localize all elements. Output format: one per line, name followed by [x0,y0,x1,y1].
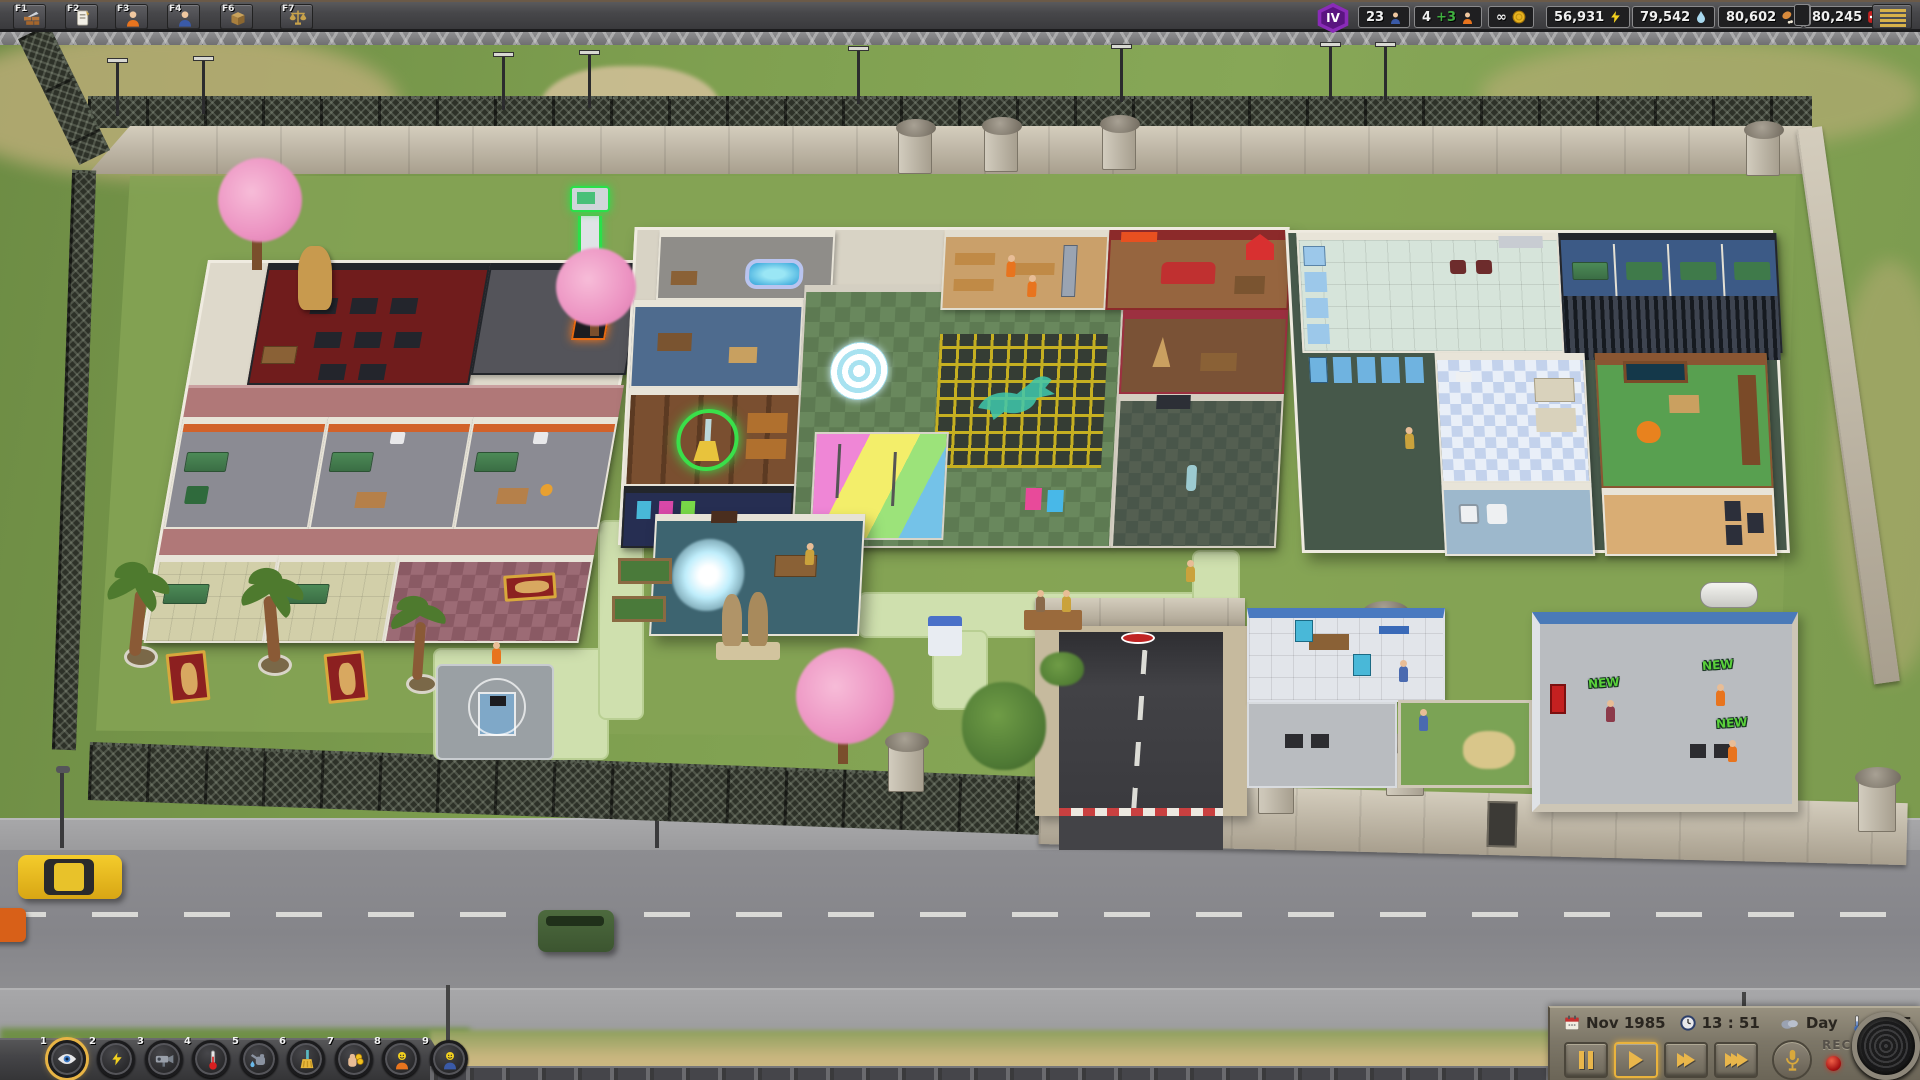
gate-sign [1121,632,1155,644]
barrier-stripe[interactable] [1059,808,1223,816]
tool-number: 6 [279,1036,286,1047]
guard[interactable] [1399,666,1408,682]
desk[interactable] [657,333,692,351]
build-menu-button[interactable]: F1 [13,4,46,30]
power-value: 56,931 [1554,10,1604,25]
art-studio[interactable] [1119,310,1288,394]
main-block[interactable] [618,227,1290,545]
map-edge-railing [0,32,1920,45]
corridor [183,385,624,417]
daypart-cloud-icon [1780,1016,1800,1030]
common-hall[interactable] [791,285,1125,548]
play-icon [1629,1051,1643,1069]
game-time: 13 : 51 [1702,1014,1760,1032]
camera-overlay-icon [155,1053,175,1067]
top-toolbar: F1 F2 F3 F4 [0,0,1920,32]
staff-member[interactable] [805,549,815,565]
microphone-icon [1785,1049,1800,1073]
hamburger-menu-icon [1880,9,1906,27]
power-counter[interactable]: 56,931 [1546,6,1630,28]
game-screen: NEW NEW NEW [0,0,1920,1080]
laundry-room[interactable] [1441,483,1595,556]
gold-statue[interactable] [298,246,332,310]
perimeter-wall-top [88,126,1812,174]
desk[interactable] [261,346,298,364]
rec-label: REC [1822,1038,1851,1052]
staff-icon [177,9,193,27]
scanner-machine[interactable] [1295,620,1313,642]
floodlight [1329,42,1332,100]
guard[interactable] [1419,715,1428,731]
rabbit-statue[interactable] [748,592,768,646]
water-overlay-button[interactable] [240,1040,278,1078]
floodlight [588,50,591,108]
fastest-forward-icon [1725,1053,1748,1067]
spotlight[interactable] [835,444,841,498]
counter[interactable] [1498,236,1543,248]
food-counter-value: 80,602 [1726,10,1776,25]
picnic-table[interactable] [1024,610,1082,630]
palm-tree [104,560,164,678]
driveway-ramp [1059,632,1223,816]
corridor [159,529,599,555]
reception-court[interactable] [1247,702,1397,788]
green-van[interactable] [538,910,614,952]
watchtower[interactable] [1858,778,1896,832]
money-coin-icon [1512,10,1526,24]
orange-car[interactable] [0,908,26,942]
floodlight [1384,42,1387,100]
shower-stalls[interactable] [1303,246,1326,266]
armchair[interactable] [711,511,738,523]
easel[interactable] [1152,337,1172,367]
water-counter[interactable]: 79,542 [1632,6,1715,28]
power-overlay-icon [110,1050,124,1068]
tool-number: 9 [422,1036,429,1047]
floodlight [116,58,119,116]
watchtower[interactable] [898,128,932,174]
prisoner-count-bonus: +3 [1436,10,1456,25]
cell-beds[interactable] [1572,262,1609,280]
cherry-tree-canopy [796,648,894,744]
fast-forward-icon [1677,1053,1695,1067]
water-overlay-icon [250,1052,270,1068]
watchtower[interactable] [1102,124,1136,170]
dinosaur-topiary[interactable] [969,368,1068,424]
medical-counter-value: 80,245 [1812,10,1862,25]
chairs[interactable] [1450,260,1467,274]
cherry-tree-canopy [556,248,636,326]
floodlight [1120,44,1123,102]
new-prisoner-badge: NEW [1716,715,1748,731]
money-value: ∞ [1496,10,1507,25]
courtyard[interactable] [1398,700,1532,788]
cell[interactable] [164,417,329,529]
prisoner-count-icon [1461,11,1474,24]
cherry-tree-canopy [218,158,302,242]
propane-tank[interactable] [1700,582,1758,608]
phone-booth[interactable] [1550,684,1566,714]
games-room[interactable] [1602,488,1778,556]
prisoner-count[interactable]: 4 +3 [1414,6,1482,28]
entry-door[interactable] [1156,395,1191,409]
cleanliness-overlay-button[interactable] [287,1040,325,1078]
justice-menu-button[interactable]: F7 [280,4,313,30]
shower-room[interactable] [1296,233,1564,353]
desk[interactable] [1200,353,1237,371]
tool-number: 3 [137,1036,144,1047]
reception-desk[interactable] [1309,634,1349,650]
table[interactable] [496,488,529,504]
announce-mic-button[interactable] [1772,1040,1812,1080]
contracts-icon [75,9,91,27]
tool-number: 2 [89,1036,96,1047]
bean-bag[interactable] [1636,421,1661,443]
cafeteria-tables[interactable] [955,253,996,265]
daypart-label: Day [1806,1014,1838,1032]
tiger-statue-mat[interactable] [503,572,557,602]
vending-machines[interactable] [1025,488,1042,510]
staff-menu-button[interactable]: F4 [167,4,200,30]
cell[interactable] [309,417,474,529]
floodlight [502,52,505,110]
prison-level-badge[interactable]: IV [1316,3,1350,33]
new-prisoner-badge: NEW [1588,675,1620,691]
calendar-icon [1564,1015,1580,1031]
money-counter[interactable]: ∞ [1488,6,1534,28]
taxi-vehicle[interactable] [18,855,122,899]
view-mode-button[interactable] [48,1040,86,1078]
scanner-machine[interactable] [1353,654,1371,676]
broom-shop[interactable] [624,388,804,486]
bottom-rail [430,1066,1550,1080]
staff-mood-button[interactable] [430,1040,468,1078]
staff-member[interactable] [1405,433,1415,449]
cell-block-b[interactable] [1285,230,1790,553]
cell-block-a[interactable] [141,260,643,640]
washing-machines[interactable] [1458,504,1479,524]
prisoner[interactable] [1716,690,1725,706]
chairs[interactable] [1690,744,1706,758]
cell[interactable] [454,417,619,529]
tool-number: 8 [374,1036,381,1047]
bush [1040,652,1084,686]
cafeteria[interactable] [940,230,1109,310]
prisoner[interactable] [1006,261,1016,277]
arcade-machines[interactable] [636,501,651,519]
prisoner[interactable] [492,648,501,664]
staff-count-value: 23 [1366,10,1384,25]
table[interactable] [354,492,387,508]
driveway-center-line [1131,642,1148,812]
prisoner[interactable] [1027,281,1037,297]
statue[interactable] [1186,465,1197,491]
supplies-box-icon [229,10,247,26]
red-couch[interactable] [1161,262,1216,284]
prisoner-count-value: 4 [1422,10,1431,25]
toilet-stalls[interactable] [1534,378,1575,402]
garden-plot[interactable] [618,558,672,584]
new-prisoner-badge: NEW [1702,657,1734,673]
water-value: 79,542 [1640,10,1690,25]
prisoner[interactable] [1728,746,1737,762]
cell-dividers [1613,244,1618,296]
holding-yard[interactable]: NEW NEW NEW [1532,612,1798,812]
produce-crates[interactable] [747,413,788,433]
bathroom[interactable] [1435,353,1592,483]
tool-number: 4 [184,1036,191,1047]
chairs[interactable] [1285,734,1303,748]
table[interactable] [1669,395,1700,413]
build-wall-icon [23,11,41,27]
teddy-bear[interactable] [539,484,553,496]
watchtower[interactable] [888,742,924,792]
power-bolt-icon [1609,10,1622,24]
tool-number: 5 [232,1036,239,1047]
sink[interactable] [533,432,549,444]
recreation-room[interactable] [1595,353,1774,488]
cleanliness-overlay-icon [299,1050,315,1070]
camera-overlay-button[interactable] [145,1040,183,1078]
road-center-line [0,912,1920,917]
wall-gate-door[interactable] [1487,801,1518,848]
clock-icon [1680,1015,1696,1031]
justice-scales-icon [289,9,307,27]
fastest-forward-button[interactable] [1714,1042,1758,1078]
sink[interactable] [1456,372,1473,382]
food-counter[interactable]: 80,602 [1718,6,1803,28]
medical-counter2 [1794,4,1810,26]
security-room[interactable] [247,263,491,385]
tool-number: 7 [327,1036,334,1047]
bush-tree [962,682,1046,770]
view-eye-icon [57,1052,77,1066]
supplies-menu-button[interactable]: F6 [220,4,253,30]
fast-forward-button[interactable] [1664,1042,1708,1078]
watchtower[interactable] [1746,130,1780,176]
hot-tub[interactable] [744,259,804,289]
basketball-hoop[interactable] [490,696,506,706]
barrier-rail [1379,626,1409,634]
main-menu-button[interactable] [1872,4,1912,30]
visitor[interactable] [1036,596,1045,612]
level-label: IV [1326,11,1340,25]
rec-indicator-lamp [1826,1056,1841,1071]
staff-member[interactable] [1186,566,1195,582]
perimeter-fence-top [88,96,1812,128]
prisoner-mood-button[interactable] [382,1040,420,1078]
serving-counter[interactable] [1061,245,1078,297]
temperature-overlay-button[interactable] [192,1040,230,1078]
tiger-statue-mat[interactable] [165,650,210,704]
shelves[interactable] [1738,375,1761,465]
pause-button[interactable] [1564,1042,1608,1078]
game-date: Nov 1985 [1586,1014,1666,1032]
watchtower[interactable] [984,126,1018,172]
spotlight[interactable] [891,452,897,506]
time-control-panel: Nov 1985 13 : 51 Day 68 °F REC [1548,1006,1920,1080]
finance-overlay-button[interactable] [335,1040,373,1078]
desk[interactable] [1234,276,1265,294]
reception[interactable] [1247,608,1445,702]
arcade-machines[interactable] [1724,501,1741,521]
rabbit-statue[interactable] [722,594,742,646]
sink[interactable] [390,432,406,444]
tiger-statue-mat[interactable] [323,650,368,704]
staff-count-icon [1389,11,1402,24]
staff-mood-icon [442,1050,458,1070]
finance-overlay-icon [346,1051,364,1069]
temperature-overlay-icon [207,1050,219,1070]
basketball-court[interactable] [436,664,554,760]
cell-bars [1564,296,1781,360]
sand-patch [1463,731,1515,769]
play-button[interactable] [1614,1042,1658,1078]
swirl-pool[interactable] [829,342,890,400]
contracts-menu-button[interactable]: F2 [65,4,98,30]
visitor[interactable] [1062,596,1071,612]
desk[interactable] [671,271,698,285]
floodlight [202,56,205,114]
power-overlay-button[interactable] [97,1040,135,1078]
fireplace[interactable] [1121,232,1158,242]
palm-tree [238,568,298,684]
prisoner-mood-icon [394,1050,410,1070]
neon-broom-sign[interactable] [675,409,740,471]
vending-nook[interactable] [1303,353,1438,403]
prisoner[interactable] [1606,706,1615,722]
office-room[interactable] [629,300,804,388]
garden-plot[interactable] [612,596,666,622]
driveway-exit [1059,812,1223,850]
pool-table[interactable] [1623,361,1688,383]
street-lamp [60,772,64,848]
road [0,850,1920,988]
netted-grow-area[interactable] [933,334,1108,468]
jail-cells[interactable] [1558,233,1782,353]
locker[interactable] [184,486,209,504]
floodlight [857,46,860,104]
water-drop-icon [1695,10,1707,24]
speaker-grille [1852,1012,1920,1080]
tool-number: 1 [40,1036,47,1047]
vending-machines[interactable] [1309,357,1328,383]
entry-hall[interactable] [1111,394,1284,548]
kiosk[interactable] [928,616,962,656]
staff-count[interactable]: 23 [1358,6,1410,28]
table[interactable] [729,347,758,363]
pause-icon [1579,1051,1593,1069]
prisoners-icon [125,9,141,27]
prisoners-menu-button[interactable]: F3 [115,4,148,30]
